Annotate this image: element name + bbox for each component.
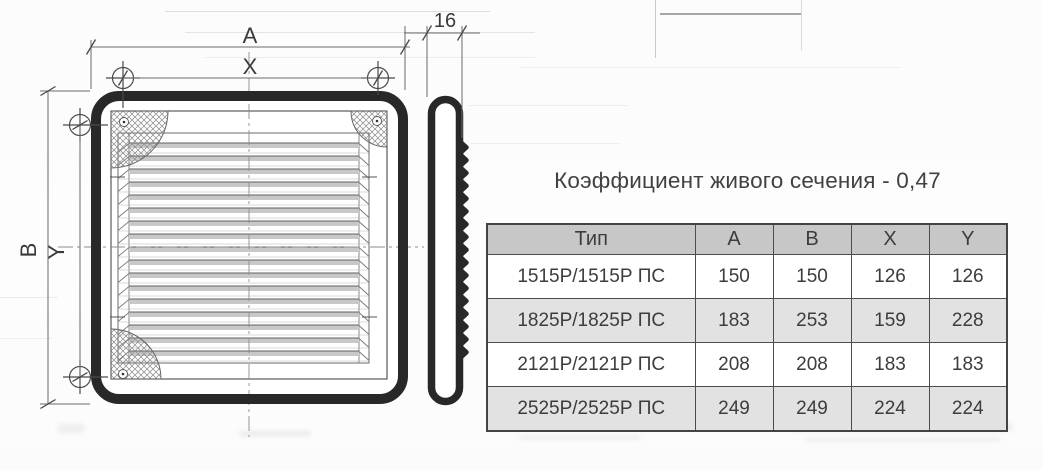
scan-artifact-line [655, 0, 656, 58]
cell-a: 183 [695, 299, 773, 343]
dim-label-B: B [16, 243, 41, 258]
table-header-row: Тип A B X Y [487, 224, 1007, 255]
cell-type: 2525Р/2525Р ПС [487, 387, 695, 432]
cell-a: 249 [695, 387, 773, 432]
cell-y: 183 [929, 343, 1007, 387]
cell-x: 224 [851, 387, 929, 432]
dim-label-X: X [243, 54, 258, 79]
col-header-x: X [851, 224, 929, 255]
col-header-a: A [695, 224, 773, 255]
table-row: 1515Р/1515Р ПС 150 150 126 126 [487, 255, 1007, 299]
cell-y: 224 [929, 387, 1007, 432]
cell-b: 253 [773, 299, 851, 343]
side-view [432, 100, 467, 402]
table-row: 1825Р/1825Р ПС 183 253 159 228 [487, 299, 1007, 343]
cell-y: 126 [929, 255, 1007, 299]
scan-artifact-line [660, 13, 802, 15]
front-view [58, 52, 424, 437]
cell-a: 208 [695, 343, 773, 387]
col-header-type: Тип [487, 224, 695, 255]
scan-smudge [520, 436, 640, 440]
dim-label-Y: Y [44, 244, 69, 259]
cell-type: 2121Р/2121Р ПС [487, 343, 695, 387]
col-header-b: B [773, 224, 851, 255]
scan-artifact-line [801, 0, 802, 50]
catalog-page: A X B Y 16 Коэффициент живого сечения - … [0, 0, 1043, 470]
cell-b: 249 [773, 387, 851, 432]
cell-x: 183 [851, 343, 929, 387]
dim-label-A: A [243, 23, 258, 48]
dimensions-table: Тип A B X Y 1515Р/1515Р ПС 150 150 126 1… [486, 223, 1008, 432]
section-title: Коэффициент живого сечения - 0,47 [487, 168, 1008, 194]
cell-b: 208 [773, 343, 851, 387]
scan-artifact-line [468, 105, 628, 106]
dim-label-16: 16 [434, 10, 456, 32]
cell-x: 159 [851, 299, 929, 343]
grille-technical-drawing: A X B Y 16 [0, 0, 483, 470]
cell-type: 1515Р/1515Р ПС [487, 255, 695, 299]
table-row: 2121Р/2121Р ПС 208 208 183 183 [487, 343, 1007, 387]
scan-artifact-line [520, 67, 900, 68]
col-header-y: Y [929, 224, 1007, 255]
cell-x: 126 [851, 255, 929, 299]
scan-artifact-line [470, 143, 620, 144]
cell-type: 1825Р/1825Р ПС [487, 299, 695, 343]
table-row: 2525Р/2525Р ПС 249 249 224 224 [487, 387, 1007, 432]
cell-y: 228 [929, 299, 1007, 343]
cell-a: 150 [695, 255, 773, 299]
cell-b: 150 [773, 255, 851, 299]
scan-smudge [805, 437, 1000, 442]
